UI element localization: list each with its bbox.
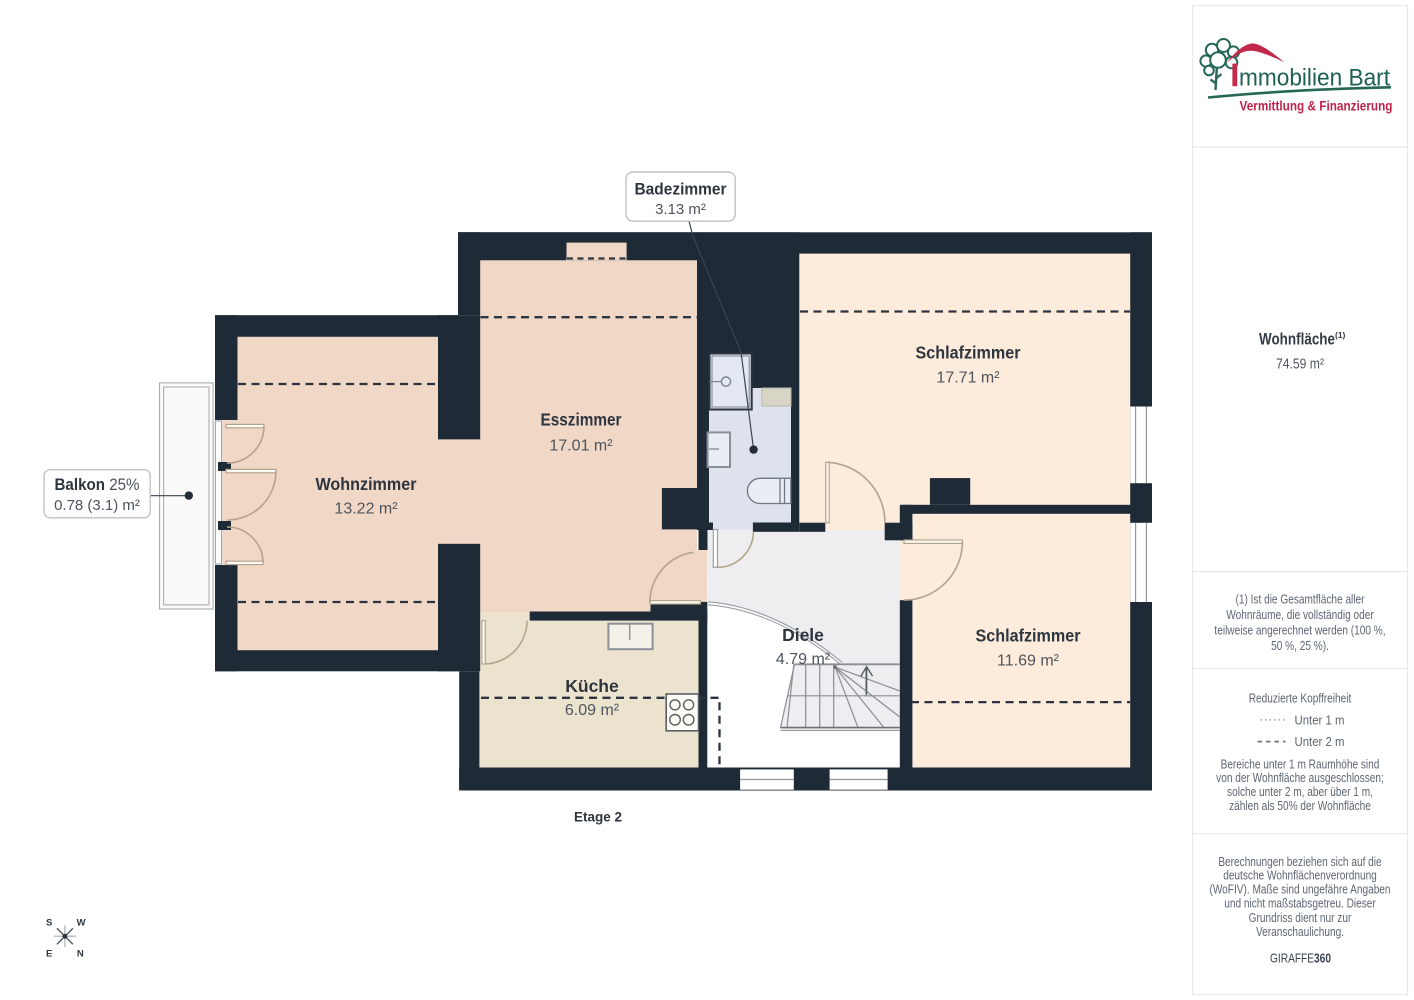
svg-text:zählen als 50% der Wohnfläche: zählen als 50% der Wohnfläche: [1229, 800, 1371, 813]
svg-text:Bereiche unter 1 m Raumhöhe si: Bereiche unter 1 m Raumhöhe sind: [1221, 758, 1380, 771]
svg-text:17.71 m²: 17.71 m²: [936, 370, 1000, 387]
svg-text:17.01 m²: 17.01 m²: [549, 438, 613, 455]
svg-text:GIRAFFE360: GIRAFFE360: [1270, 952, 1331, 966]
svg-text:Badezimmer: Badezimmer: [635, 181, 728, 199]
svg-text:Berechnungen beziehen sich auf: Berechnungen beziehen sich auf die: [1218, 856, 1381, 869]
svg-text:Grundriss dient nur zur: Grundriss dient nur zur: [1249, 912, 1352, 925]
svg-text:Schlafzimmer: Schlafzimmer: [916, 343, 1021, 363]
svg-text:3.13 m²: 3.13 m²: [655, 201, 706, 218]
svg-text:11.69 m²: 11.69 m²: [997, 653, 1060, 670]
svg-text:E: E: [46, 949, 52, 960]
svg-text:6.09 m²: 6.09 m²: [565, 702, 620, 719]
svg-text:Veranschaulichung.: Veranschaulichung.: [1256, 926, 1344, 939]
svg-text:50 %, 25 %).: 50 %, 25 %).: [1271, 640, 1329, 653]
svg-text:4.79 m²: 4.79 m²: [776, 651, 831, 668]
svg-text:von der Wohnfläche ausgeschlos: von der Wohnfläche ausgeschlossen;: [1216, 772, 1384, 785]
svg-text:Balkon 25%: Balkon 25%: [55, 476, 140, 494]
svg-text:S: S: [46, 918, 52, 929]
svg-text:Unter 2 m: Unter 2 m: [1295, 734, 1345, 749]
svg-text:Wohnräume, die vollständig ode: Wohnräume, die vollständig oder: [1226, 609, 1374, 622]
svg-text:Unter 1 m: Unter 1 m: [1295, 712, 1345, 727]
svg-text:Küche: Küche: [565, 676, 619, 696]
svg-text:Wohnfläche(1): Wohnfläche(1): [1259, 330, 1346, 349]
svg-text:teilweise angerechnet werden (: teilweise angerechnet werden (100 %,: [1214, 625, 1385, 638]
svg-text:Diele: Diele: [782, 625, 824, 645]
svg-text:Vermittlung & Finanzierung: Vermittlung & Finanzierung: [1240, 99, 1393, 114]
svg-text:deutsche Wohnflächenverordnung: deutsche Wohnflächenverordnung: [1223, 869, 1377, 882]
svg-text:Schlafzimmer: Schlafzimmer: [976, 626, 1081, 646]
svg-text:74.59 m²: 74.59 m²: [1276, 357, 1324, 373]
svg-text:(1) Ist die Gesamtfläche aller: (1) Ist die Gesamtfläche aller: [1235, 594, 1364, 607]
svg-text:Etage 2: Etage 2: [574, 810, 622, 825]
svg-text:Reduzierte Kopffreiheit: Reduzierte Kopffreiheit: [1249, 693, 1352, 706]
svg-text:13.22 m²: 13.22 m²: [334, 501, 398, 518]
svg-text:und nicht maßstabsgetreu. Dies: und nicht maßstabsgetreu. Dieser: [1224, 898, 1376, 911]
svg-text:(WoFIV). Maße sind ungefähre A: (WoFIV). Maße sind ungefähre Angaben: [1209, 884, 1390, 897]
svg-text:W: W: [77, 918, 86, 929]
svg-text:N: N: [77, 949, 84, 960]
svg-text:0.78 (3.1) m²: 0.78 (3.1) m²: [54, 497, 140, 514]
svg-text:Wohnzimmer: Wohnzimmer: [316, 474, 417, 494]
svg-text:Esszimmer: Esszimmer: [541, 410, 622, 430]
svg-text:solche unter 2 m, aber über 1: solche unter 2 m, aber über 1 m,: [1227, 786, 1373, 799]
